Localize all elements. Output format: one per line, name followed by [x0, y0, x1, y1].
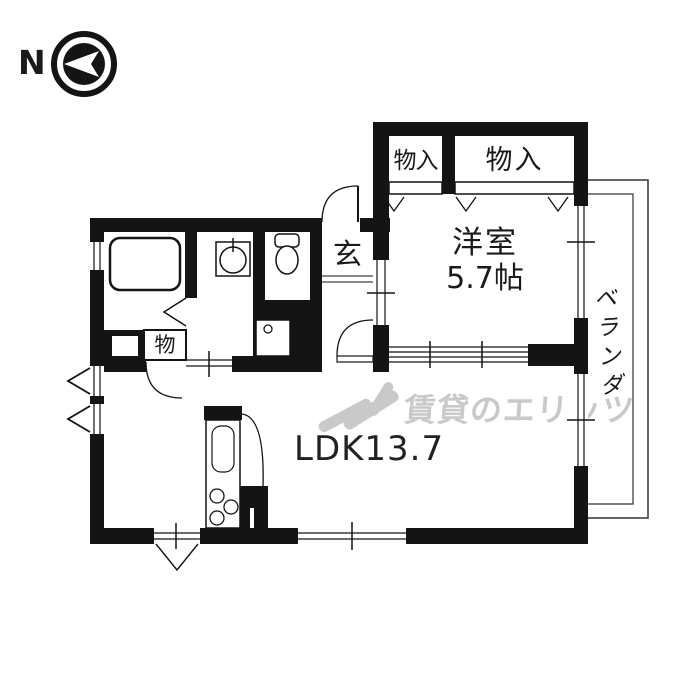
wall-segment: [310, 232, 322, 372]
sliding-partition: [389, 341, 528, 368]
wall-segment: [253, 232, 265, 300]
wall-segment: [574, 466, 588, 544]
stove-burner-icon: [210, 489, 224, 503]
wall-segment: [90, 218, 104, 242]
kitchen-door-swing-arc-icon: [242, 414, 263, 486]
western-room-size: 5.7帖: [400, 262, 570, 297]
casement-swing-icon: [156, 544, 198, 570]
wall-segment: [442, 136, 455, 194]
kitchen-sink: [212, 426, 234, 472]
window-bathroom: [90, 242, 104, 270]
closet-door-panel: [389, 182, 442, 194]
north-compass-icon: [54, 34, 114, 94]
window-casement-left-2: [68, 404, 104, 434]
bathtub: [110, 238, 180, 290]
western-room-name: 洋室: [400, 226, 570, 262]
kitchen-counter-end-wall: [204, 406, 242, 420]
door-swing-mark-icon: [548, 197, 568, 211]
wall-niche: [112, 336, 138, 356]
entrance-label: 玄: [322, 238, 373, 271]
wall-segment: [373, 122, 389, 260]
casement-swing-icon: [68, 406, 90, 432]
closet-right-label: 物入: [455, 145, 574, 176]
wall-segment: [90, 270, 104, 366]
stove-burner-icon: [210, 511, 224, 525]
western-room-label: 洋室 5.7帖: [400, 226, 570, 296]
wall-segment: [254, 508, 268, 528]
casement-swing-icon: [68, 368, 90, 394]
wall-segment: [185, 232, 197, 298]
wall-segment: [373, 325, 389, 372]
door-swing-arc-icon: [322, 186, 358, 222]
kitchen-counter: [206, 420, 240, 528]
closet-door-panel: [455, 182, 574, 194]
wall-segment: [360, 218, 390, 232]
wall-segment: [232, 356, 322, 372]
window-bottom-small: [154, 523, 200, 570]
window-bottom-main: [298, 522, 406, 550]
wall-segment: [90, 528, 154, 544]
entrance-door: [322, 186, 358, 222]
genkan-step-lines: [322, 276, 373, 282]
floorplan-image: 賃貸のエリッツ: [0, 0, 700, 700]
wall-segment: [406, 528, 588, 544]
door-swing-arc-icon: [337, 320, 373, 356]
door-swing-mark-icon: [456, 197, 476, 211]
ldk-label: LDK13.7: [294, 430, 444, 469]
sliding-door-washroom: [186, 351, 232, 377]
bathroom-folding-door-icon: [164, 298, 186, 326]
window-veranda-lower: [567, 374, 595, 466]
wall-segment: [200, 528, 298, 544]
toilet: [275, 234, 299, 274]
wall-segment: [528, 344, 574, 366]
hall-to-ldk-door: [337, 320, 373, 362]
washing-machine-pan: [256, 320, 290, 356]
window-casement-left-1: [68, 366, 104, 396]
north-label: N: [18, 44, 46, 82]
wall-segment: [574, 122, 588, 206]
stove-burner-icon: [224, 500, 238, 514]
wall-segment: [574, 318, 588, 374]
closet-doors: [384, 182, 574, 211]
storage-door-swing-arc-icon: [146, 362, 182, 398]
closet-left-label: 物入: [389, 148, 442, 174]
wall-segment: [90, 218, 322, 232]
wall-segment: [90, 434, 104, 544]
wash-basin: [216, 238, 250, 276]
wall-segment: [375, 122, 588, 136]
wall-segment: [90, 396, 104, 404]
storage-closet-label: 物: [144, 333, 186, 357]
